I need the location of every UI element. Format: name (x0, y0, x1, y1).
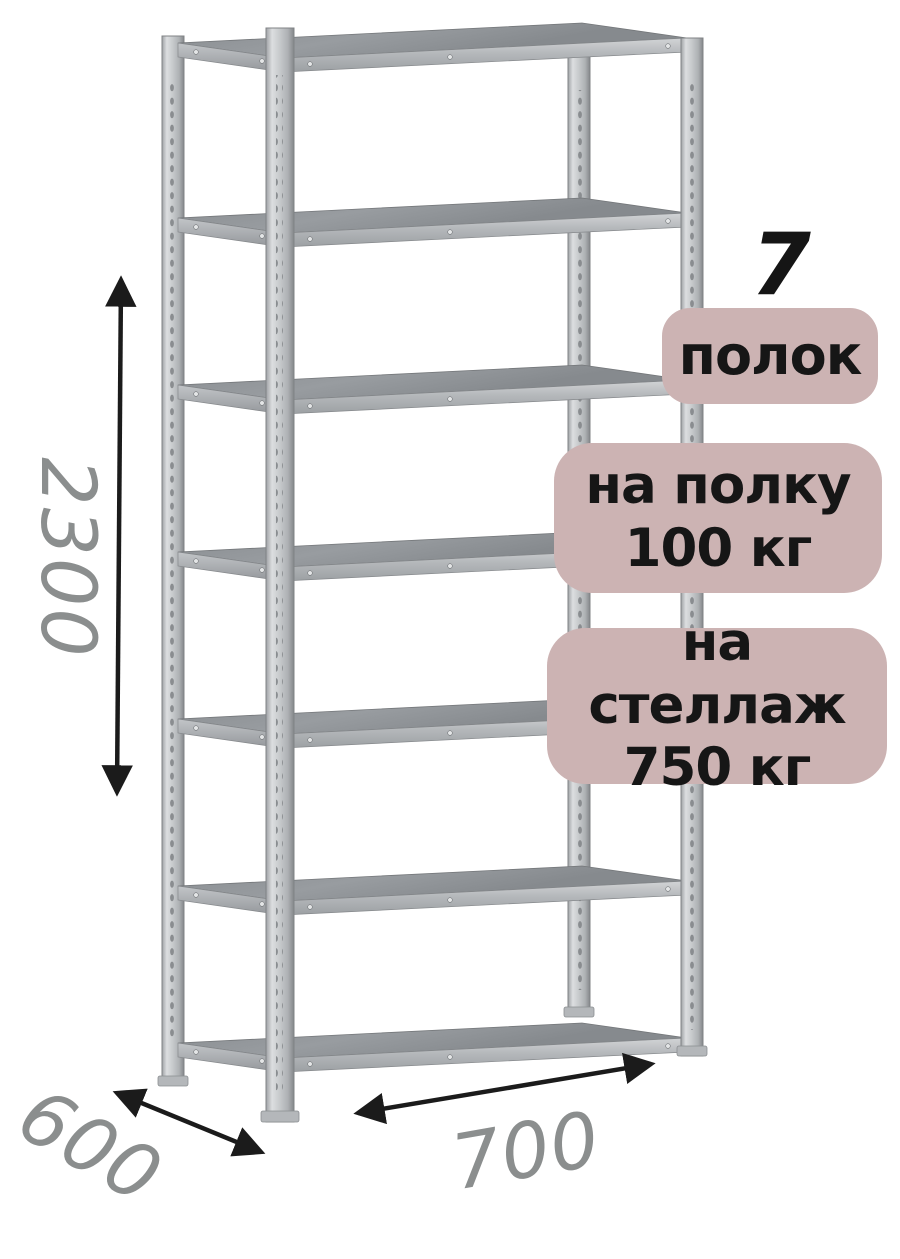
shelf-7 (178, 1023, 687, 1072)
shelf-count-badge-label: полок (679, 324, 862, 388)
front-left-post (261, 28, 299, 1122)
height-dimension-arrow (117, 280, 121, 792)
shelf-load-line1: на полку (585, 455, 850, 518)
front-left-foot (261, 1111, 299, 1122)
shelving-rack-drawing (0, 0, 900, 1200)
rack-load-line2: 750 кг (624, 737, 811, 800)
shelf-1 (178, 23, 687, 72)
rack-load-badge: на стеллаж 750 кг (547, 628, 887, 784)
shelf-count-badge: полок (662, 308, 878, 404)
shelf-6 (178, 866, 687, 915)
depth-dimension-arrow (117, 1093, 261, 1152)
shelf-count-number: 7 (716, 222, 846, 308)
shelf-2 (178, 198, 687, 247)
shelf-load-badge: на полку 100 кг (554, 443, 882, 593)
width-dimension-arrow (358, 1064, 651, 1113)
rear-right-foot (564, 1007, 594, 1017)
front-right-foot (677, 1046, 707, 1056)
rear-left-foot (158, 1076, 188, 1086)
shelf-3 (178, 365, 687, 414)
rack-load-line1: на стеллаж (547, 612, 887, 737)
product-illustration: 2300 600 700 7 полок на полку 100 кг на … (0, 0, 900, 1200)
shelf-load-line2: 100 кг (625, 518, 812, 581)
